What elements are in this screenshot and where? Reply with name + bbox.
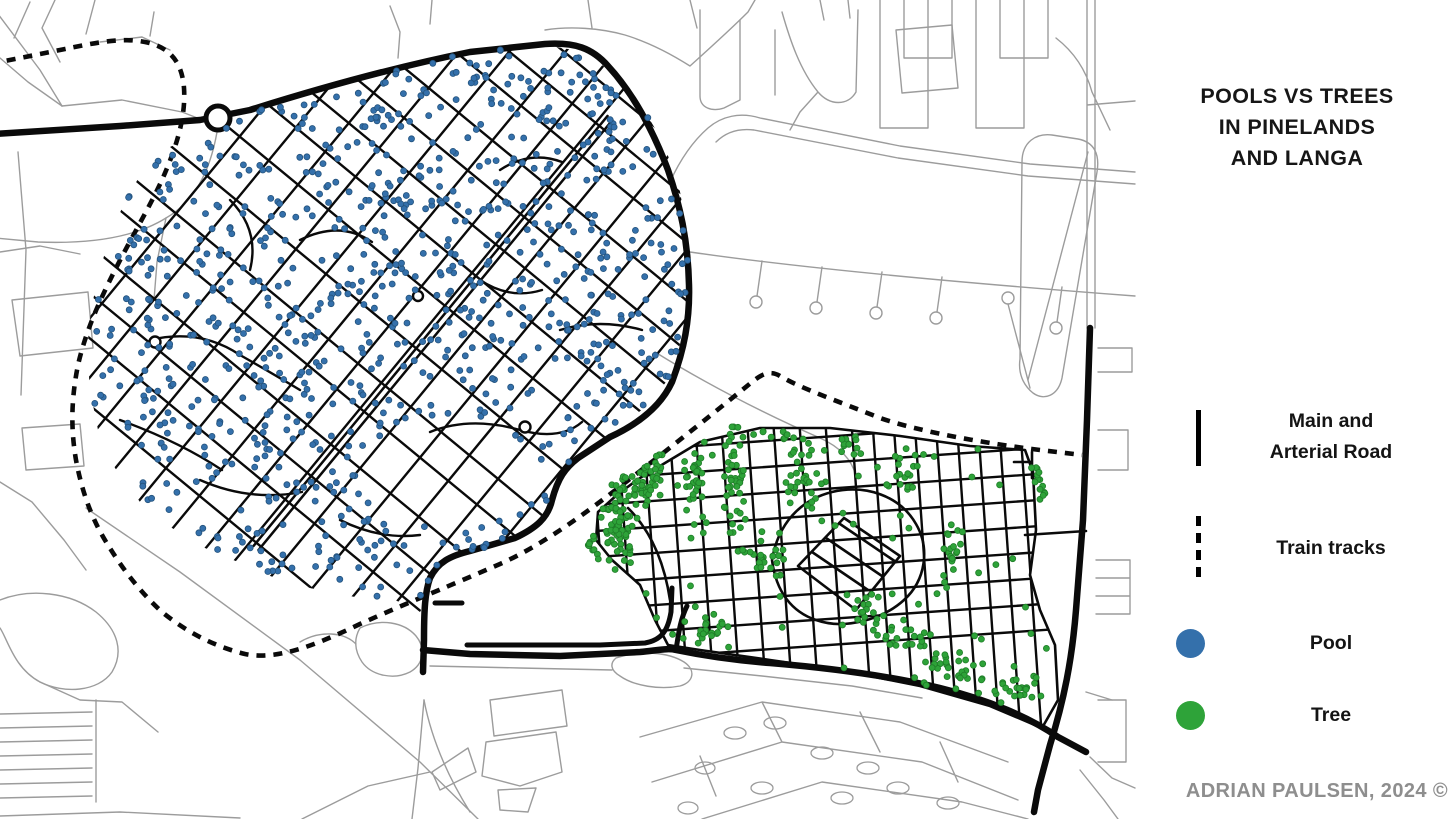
infographic-root: POOLS VS TREES IN PINELANDS AND LANGA Ma…	[0, 0, 1456, 819]
legend-label-main-road: Main and Arterial Road	[1226, 406, 1436, 468]
page-title: POOLS VS TREES IN PINELANDS AND LANGA	[1138, 81, 1456, 174]
attribution: ADRIAN PAULSEN, 2024 ©	[1186, 780, 1448, 803]
title-line-1: POOLS VS TREES	[1138, 81, 1456, 112]
title-line-2: IN PINELANDS	[1138, 112, 1456, 143]
legend-label-tree: Tree	[1226, 700, 1436, 731]
solid-line-swatch	[1196, 410, 1201, 466]
dashed-line-swatch	[1196, 516, 1201, 580]
side-panel: POOLS VS TREES IN PINELANDS AND LANGA Ma…	[1138, 0, 1456, 819]
legend-label-pool: Pool	[1226, 628, 1436, 659]
tree-dot-swatch	[1176, 701, 1205, 730]
title-line-3: AND LANGA	[1138, 143, 1456, 174]
pool-dot-swatch	[1176, 629, 1205, 658]
legend-label-train-tracks: Train tracks	[1226, 533, 1436, 564]
